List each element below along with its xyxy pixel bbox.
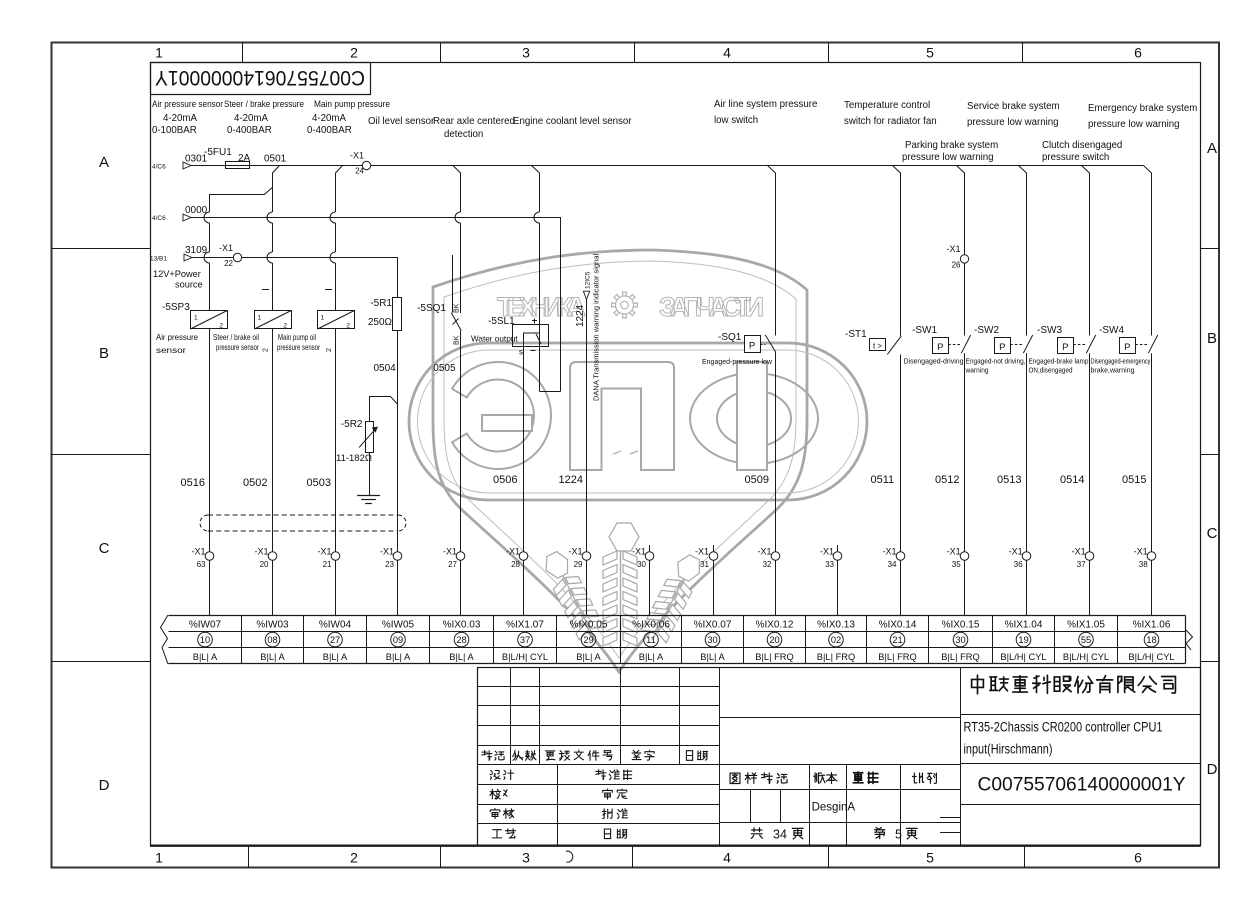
svg-text:2: 2 [283, 323, 287, 330]
svg-text:4/C6: 4/C6 [152, 215, 166, 222]
svg-text:warning: warning [965, 366, 989, 375]
svg-text:Oil level sensor: Oil level sensor [368, 116, 435, 127]
svg-text:1: 1 [155, 45, 163, 61]
svg-text:22: 22 [224, 259, 233, 268]
svg-text:1: 1 [321, 315, 325, 322]
svg-text:Main pump oil: Main pump oil [278, 333, 316, 342]
svg-text:08: 08 [267, 635, 277, 645]
svg-text:0515: 0515 [1122, 474, 1146, 486]
svg-text:%IX1.05: %IX1.05 [1067, 619, 1105, 630]
svg-text:-5SQ1: -5SQ1 [417, 303, 446, 314]
svg-text:0-400BAR: 0-400BAR [227, 125, 272, 136]
svg-text:Disengaged-driving: Disengaged-driving [904, 357, 964, 366]
svg-text:low switch: low switch [714, 115, 758, 126]
svg-text:1224: 1224 [575, 304, 586, 327]
svg-text:-SW1: -SW1 [912, 325, 937, 336]
svg-text:%IW03: %IW03 [256, 619, 289, 630]
svg-text:%IX0.14: %IX0.14 [879, 619, 917, 630]
svg-text:6: 6 [1134, 850, 1142, 866]
svg-text:0506: 0506 [493, 474, 517, 486]
svg-text:Disengaged-emergency: Disengaged-emergency [1091, 357, 1151, 366]
svg-text:D: D [1207, 761, 1218, 778]
svg-text:Air line system pressure: Air line system pressure [714, 99, 817, 110]
svg-text:0501: 0501 [264, 154, 287, 165]
svg-text:2: 2 [326, 348, 333, 352]
svg-text:0503: 0503 [307, 477, 331, 489]
svg-text:3109: 3109 [185, 245, 208, 256]
svg-text:detection: detection [444, 129, 483, 140]
svg-text:11-182Ω: 11-182Ω [336, 453, 372, 464]
svg-text:Steer / brake oil: Steer / brake oil [213, 333, 259, 342]
svg-text:-SW4: -SW4 [1099, 325, 1124, 336]
svg-text:4-20mA: 4-20mA [163, 113, 197, 124]
svg-text:B|L/H| CYL: B|L/H| CYL [1063, 652, 1109, 662]
svg-text:29: 29 [583, 635, 593, 645]
svg-text:2A: 2A [238, 153, 251, 164]
svg-text:Water output: Water output [471, 335, 518, 344]
svg-text:D: D [99, 777, 110, 794]
svg-text:brake,warning: brake,warning [1091, 366, 1135, 375]
svg-text:4-20mA: 4-20mA [234, 113, 268, 124]
svg-text:24: 24 [355, 167, 364, 176]
svg-text:B: B [99, 345, 109, 362]
svg-text:-X1: -X1 [380, 547, 394, 557]
svg-text:28: 28 [456, 635, 466, 645]
svg-text:26: 26 [952, 261, 961, 270]
svg-text:DesginA: DesginA [812, 802, 856, 814]
svg-text:10: 10 [200, 635, 210, 645]
svg-text:09: 09 [393, 635, 403, 645]
svg-text:-X1: -X1 [946, 244, 960, 254]
svg-text:C00755706140000001Y: C00755706140000001Y [155, 66, 365, 89]
svg-text:0-100BAR: 0-100BAR [152, 125, 197, 136]
svg-text:B|L/H| CYL: B|L/H| CYL [1000, 652, 1046, 662]
svg-text:B|L| FRQ: B|L| FRQ [817, 652, 855, 662]
svg-text:2: 2 [219, 323, 223, 330]
svg-text:B|L| A: B|L| A [323, 652, 348, 662]
svg-text:%IX1.07: %IX1.07 [506, 619, 544, 630]
svg-text:Main pump pressure: Main pump pressure [314, 99, 390, 109]
svg-text:B|L| A: B|L| A [193, 652, 218, 662]
svg-text:-SW3: -SW3 [1037, 325, 1062, 336]
svg-text:P: P [999, 342, 1005, 353]
svg-text:0511: 0511 [871, 474, 895, 486]
svg-text:-ST1: -ST1 [845, 329, 867, 340]
svg-text:21: 21 [323, 560, 332, 569]
svg-text:0-400BAR: 0-400BAR [307, 125, 352, 136]
svg-text:-X1: -X1 [947, 547, 961, 557]
svg-text:02: 02 [831, 635, 841, 645]
svg-text:B|L| A: B|L| A [639, 652, 664, 662]
svg-text:-X1: -X1 [820, 547, 834, 557]
svg-text:-5R2: -5R2 [341, 419, 363, 430]
svg-text:-X1: -X1 [191, 547, 205, 557]
svg-text:P: P [1062, 342, 1068, 353]
svg-text:20: 20 [769, 635, 779, 645]
svg-text:63: 63 [197, 560, 206, 569]
svg-text:ЗАПЧАСТИ: ЗАПЧАСТИ [659, 292, 764, 322]
svg-text:B|L| A: B|L| A [386, 652, 411, 662]
svg-text:Engine coolant level sensor: Engine coolant level sensor [513, 116, 632, 127]
svg-text:0505: 0505 [433, 363, 456, 374]
svg-text:C: C [1207, 525, 1218, 542]
svg-text:pressure sensor: pressure sensor [216, 343, 259, 352]
svg-text:-X1: -X1 [254, 547, 268, 557]
svg-text:t >: t > [873, 341, 882, 350]
svg-text:250Ω: 250Ω [368, 317, 393, 328]
svg-text:38: 38 [1139, 560, 1148, 569]
svg-text:12IC5: 12IC5 [585, 271, 592, 289]
svg-text:18: 18 [1146, 635, 1156, 645]
svg-text:-SQ1: -SQ1 [718, 332, 742, 343]
svg-text:31: 31 [700, 560, 709, 569]
svg-text:B|L| A: B|L| A [700, 652, 725, 662]
svg-text:%IX1.04: %IX1.04 [1005, 619, 1043, 630]
svg-text:A: A [1207, 140, 1217, 157]
svg-text:pressure sensor: pressure sensor [277, 343, 320, 352]
svg-text:s: s [519, 348, 523, 357]
svg-text:Engaged-brake lamp: Engaged-brake lamp [1029, 357, 1089, 366]
svg-text:3: 3 [522, 850, 530, 866]
svg-text:1: 1 [194, 315, 198, 322]
svg-text:pressure low warning: pressure low warning [967, 117, 1059, 128]
svg-text:B|L/H| CYL: B|L/H| CYL [502, 652, 548, 662]
svg-text:sensor: sensor [156, 345, 186, 355]
svg-text:2: 2 [350, 850, 358, 866]
svg-text:-X1: -X1 [568, 547, 582, 557]
svg-text:34: 34 [773, 828, 787, 842]
svg-text:%IW04: %IW04 [319, 619, 352, 630]
svg-text:-X1: -X1 [506, 547, 520, 557]
svg-text:23: 23 [385, 560, 394, 569]
svg-text:Rear axle centered: Rear axle centered [433, 116, 515, 127]
svg-text:source: source [175, 280, 203, 290]
svg-text:DANA Transmission warning indi: DANA Transmission warning indicator sign… [592, 254, 601, 401]
svg-text:-5R1: -5R1 [370, 298, 392, 309]
svg-text:BK: BK [454, 303, 461, 313]
svg-text:4-20mA: 4-20mA [312, 113, 346, 124]
svg-text:-X1: -X1 [757, 547, 771, 557]
svg-text:Emergency brake system: Emergency brake system [1088, 103, 1197, 114]
svg-text:switch for radiator fan: switch for radiator fan [844, 116, 937, 127]
svg-text:28: 28 [511, 560, 520, 569]
svg-text:B|L| FRQ: B|L| FRQ [755, 652, 793, 662]
svg-text:-X1: -X1 [1009, 547, 1023, 557]
svg-text:11: 11 [646, 635, 656, 645]
svg-text:20: 20 [260, 560, 269, 569]
svg-text:Parking brake system: Parking brake system [905, 140, 998, 151]
svg-text:-X1: -X1 [350, 151, 364, 161]
svg-text:5: 5 [926, 850, 934, 866]
svg-text:-X1: -X1 [882, 547, 896, 557]
svg-text:0504: 0504 [374, 363, 397, 374]
svg-text:pressure low warning: pressure low warning [902, 152, 994, 163]
svg-text:1: 1 [258, 315, 262, 322]
svg-text:%IX0.15: %IX0.15 [942, 619, 980, 630]
svg-text:-X1: -X1 [632, 547, 646, 557]
svg-text:1224: 1224 [559, 474, 583, 486]
svg-text:%IW05: %IW05 [382, 619, 415, 630]
svg-text:%IX0.13: %IX0.13 [817, 619, 855, 630]
svg-text:12V+Power: 12V+Power [153, 269, 201, 279]
svg-text:-X1: -X1 [1072, 547, 1086, 557]
svg-text:Clutch disengaged: Clutch disengaged [1042, 140, 1122, 151]
svg-text:%IX0.12: %IX0.12 [756, 619, 794, 630]
svg-text:29: 29 [574, 560, 583, 569]
svg-text:6: 6 [1134, 45, 1142, 61]
svg-text:0516: 0516 [181, 477, 205, 489]
svg-text:30: 30 [955, 635, 965, 645]
svg-text:-X1: -X1 [219, 243, 233, 253]
svg-text:3: 3 [522, 45, 530, 61]
svg-text:-5SL1: -5SL1 [488, 316, 515, 327]
svg-text:-X1: -X1 [1134, 547, 1148, 557]
svg-text:B|L| FRQ: B|L| FRQ [941, 652, 979, 662]
svg-text:-SW2: -SW2 [974, 325, 999, 336]
svg-text:2: 2 [346, 323, 350, 330]
svg-text:B|L| A: B|L| A [449, 652, 474, 662]
svg-text:19: 19 [1018, 635, 1028, 645]
svg-text:%IX0.03: %IX0.03 [443, 619, 481, 630]
svg-text:C00755706140000001Y: C00755706140000001Y [978, 775, 1186, 796]
svg-text:21: 21 [892, 635, 902, 645]
svg-text:Engaged-pressure low: Engaged-pressure low [702, 357, 773, 366]
svg-text:0000: 0000 [185, 205, 208, 216]
svg-text:%IX0.07: %IX0.07 [694, 619, 732, 630]
svg-text:Steer / brake pressure: Steer / brake pressure [224, 99, 304, 109]
svg-text:A: A [99, 154, 109, 171]
svg-text:B|L| A: B|L| A [260, 652, 285, 662]
svg-text:0512: 0512 [935, 474, 959, 486]
svg-text:37: 37 [520, 635, 530, 645]
svg-text:%IX1.06: %IX1.06 [1133, 619, 1171, 630]
svg-text:%IX0.06: %IX0.06 [632, 619, 670, 630]
svg-text:4: 4 [723, 850, 731, 866]
svg-text:-X1: -X1 [695, 547, 709, 557]
svg-text:0513: 0513 [997, 474, 1021, 486]
svg-text:27: 27 [448, 560, 457, 569]
svg-text:37: 37 [1077, 560, 1086, 569]
svg-text:Air pressure sensor: Air pressure sensor [152, 99, 223, 109]
svg-text:34: 34 [888, 560, 897, 569]
svg-text:4: 4 [723, 45, 731, 61]
svg-text:32: 32 [763, 560, 772, 569]
svg-text:BK: BK [454, 335, 461, 345]
svg-text:-5SP3: -5SP3 [162, 302, 190, 313]
svg-text:35: 35 [952, 560, 961, 569]
svg-text:P: P [749, 341, 755, 352]
svg-text:4/C6: 4/C6 [152, 164, 166, 171]
svg-text:55: 55 [1081, 635, 1091, 645]
svg-text:36: 36 [1014, 560, 1023, 569]
svg-text:0502: 0502 [243, 477, 267, 489]
svg-text:5: 5 [895, 828, 902, 842]
svg-text:B|L| A: B|L| A [576, 652, 601, 662]
svg-text:C: C [99, 540, 110, 557]
svg-text:RT35-2Chassis CR0200 controlle: RT35-2Chassis CR0200 controller CPU1 [964, 720, 1163, 735]
svg-text:Service brake system: Service brake system [967, 101, 1060, 112]
svg-text:5: 5 [926, 45, 934, 61]
svg-text:pressure low warning: pressure low warning [1088, 119, 1180, 130]
svg-text:ON,disengaged: ON,disengaged [1029, 366, 1073, 375]
svg-text:-X1: -X1 [317, 547, 331, 557]
svg-text:Temperature control: Temperature control [844, 100, 930, 111]
svg-text:13/B1: 13/B1 [150, 256, 167, 263]
svg-text:Engaged-not driving,: Engaged-not driving, [966, 357, 1026, 366]
svg-text:0514: 0514 [1060, 474, 1084, 486]
svg-text:1: 1 [155, 850, 163, 866]
svg-text:-X1: -X1 [443, 547, 457, 557]
svg-text:0509: 0509 [745, 474, 769, 486]
svg-text:2: 2 [350, 45, 358, 61]
svg-text:B|L| FRQ: B|L| FRQ [878, 652, 916, 662]
svg-text:Air pressure: Air pressure [156, 332, 198, 342]
svg-text:%IW07: %IW07 [189, 619, 222, 630]
svg-text:2: 2 [263, 348, 270, 352]
svg-text:-5FU1: -5FU1 [204, 147, 232, 158]
svg-text:input(Hirschmann): input(Hirschmann) [964, 742, 1053, 757]
svg-text:33: 33 [825, 560, 834, 569]
svg-text:27: 27 [330, 635, 340, 645]
svg-text:B: B [1207, 330, 1217, 347]
svg-text:P: P [937, 342, 943, 353]
svg-text:%IX0.05: %IX0.05 [570, 619, 608, 630]
svg-text:30: 30 [637, 560, 646, 569]
svg-text:30: 30 [707, 635, 717, 645]
svg-text:B|L/H| CYL: B|L/H| CYL [1128, 652, 1174, 662]
svg-text:P: P [1124, 342, 1130, 353]
svg-text:pressure switch: pressure switch [1042, 152, 1109, 163]
